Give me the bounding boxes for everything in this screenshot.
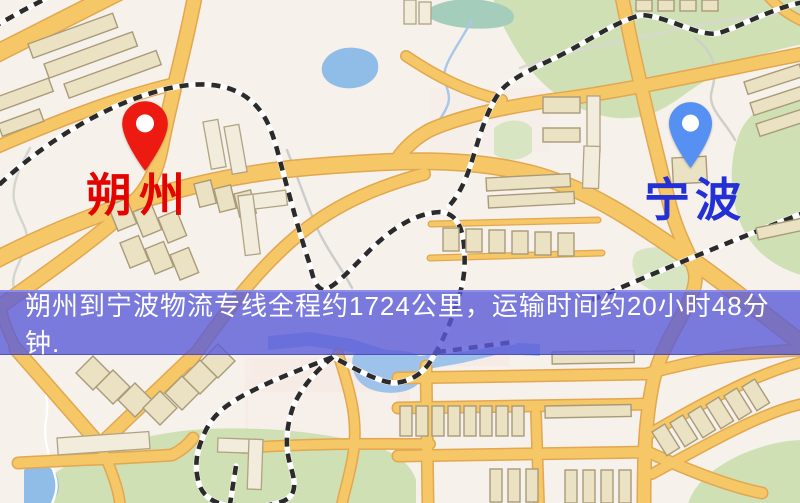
origin-pin[interactable] — [121, 100, 169, 172]
map-screenshot: 朔州 宁波 朔州到宁波物流专线全程约1724公里，运输时间约20小时48分钟. — [0, 0, 800, 503]
destination-pin-path — [669, 102, 712, 168]
route-info-text: 朔州到宁波物流专线全程约1724公里，运输时间约20小时48分钟. — [0, 286, 800, 360]
origin-label: 朔州 — [86, 172, 192, 218]
map-canvas[interactable] — [0, 0, 800, 503]
destination-label: 宁波 — [644, 177, 746, 223]
route-info-banner: 朔州到宁波物流专线全程约1724公里，运输时间约20小时48分钟. — [0, 290, 800, 355]
origin-pin-path — [122, 101, 168, 171]
map-pin-icon — [667, 101, 714, 169]
map-pin-icon — [121, 100, 169, 172]
destination-pin[interactable] — [667, 101, 714, 169]
